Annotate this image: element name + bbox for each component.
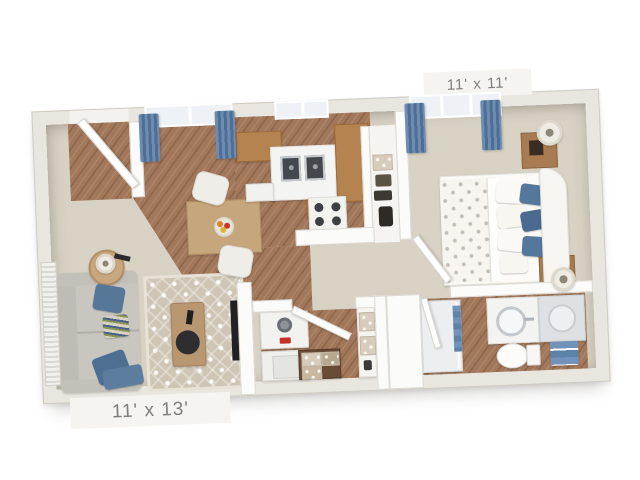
- kitchen-sink-right: [304, 155, 325, 181]
- bed-pillow-white-4: [499, 253, 528, 274]
- dining-window-mullion: [188, 106, 192, 124]
- washer-button-red: [280, 337, 291, 343]
- bedroom-window-mullion-2: [469, 95, 473, 115]
- dining-curtain-right: [214, 110, 236, 159]
- bathroom-vanity: [486, 296, 540, 344]
- stove-burner-2: [331, 202, 340, 211]
- sofa-pillow-blue-1: [92, 283, 126, 314]
- closet-clothes-1: [375, 174, 391, 187]
- kitchen-peninsula: [295, 227, 375, 246]
- stove-cooktop: [308, 196, 347, 231]
- shelf-basket-2: [360, 336, 377, 356]
- vanity-mirror: [538, 294, 586, 342]
- fruit-yellow: [220, 227, 226, 233]
- closet-storage-box: [372, 154, 393, 171]
- shelf-basket-1: [359, 312, 376, 332]
- kitchen-window-mullion: [301, 103, 305, 117]
- dishwasher: [245, 183, 274, 202]
- folded-textile-3: [302, 366, 323, 380]
- stove-burner-4: [332, 216, 341, 225]
- bed-duvet: [439, 178, 493, 283]
- washer-dial: [277, 317, 293, 333]
- laundry-top-wall-left: [252, 299, 292, 313]
- vanity-sink: [496, 306, 527, 337]
- hall-bath-wall-block: [386, 294, 424, 389]
- apartment-floorplan: 11' x 11' 11' x 13': [31, 89, 610, 405]
- folded-textile-2: [321, 351, 340, 366]
- dining-chair-2: [216, 244, 255, 279]
- closet-clothes-2: [374, 190, 392, 201]
- towel-rack-blue: [550, 341, 579, 366]
- mirror-reflection-sink: [548, 304, 577, 333]
- toilet-tank: [526, 344, 541, 366]
- shelf-hook-item: [364, 360, 372, 370]
- folded-textile-1: [301, 352, 322, 367]
- dining-curtain-left: [139, 113, 161, 162]
- kitchen-window: [274, 100, 329, 120]
- stove-burner-3: [315, 217, 324, 226]
- kitchen-sink-left: [280, 156, 301, 182]
- sofa-pillow-patterned: [102, 314, 130, 339]
- bedroom-window-mullion-1: [440, 96, 444, 116]
- stove-burner-1: [314, 203, 323, 212]
- floorplan-render: 11' x 11' 11' x 13': [0, 0, 640, 480]
- entry-wood-floor: [68, 122, 132, 201]
- laundry-basket: [298, 348, 341, 380]
- vanity-faucet: [524, 318, 534, 321]
- living-dimensions-label: 11' x 13': [70, 392, 231, 429]
- bedroom-curtain-right: [480, 100, 502, 151]
- closet-clothes-3: [378, 206, 393, 227]
- bedroom-curtain-left: [404, 103, 426, 154]
